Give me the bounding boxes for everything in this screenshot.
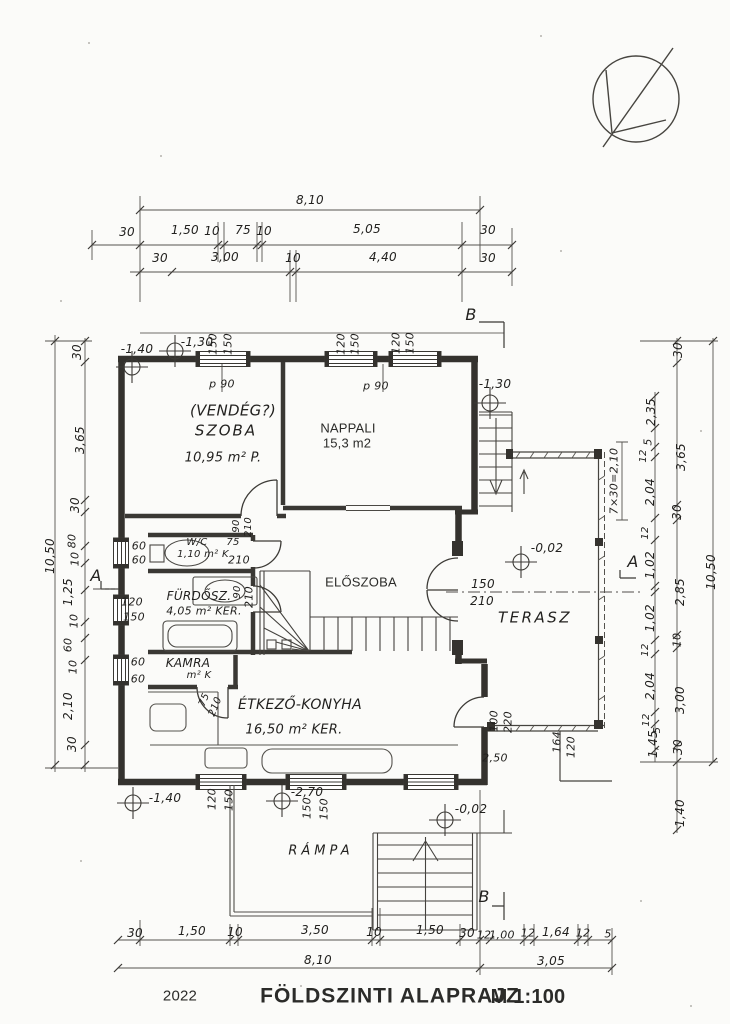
dim-label: 30 — [127, 927, 143, 939]
dim-label: 2,50 — [482, 753, 508, 764]
dim-label: 80 — [67, 534, 78, 549]
opening-label: 120 — [391, 332, 402, 354]
terrace-posts — [487, 449, 603, 731]
dim-label: 12 — [641, 643, 651, 656]
opening-label: 150 — [208, 333, 219, 355]
opening-label: 150 — [319, 798, 330, 820]
dim-label: 10 — [227, 926, 243, 938]
dim-label: 5,05 — [353, 223, 381, 235]
opening-label: 210 — [244, 586, 255, 608]
opening-label: 150 — [302, 797, 313, 819]
opening-label: 120 — [566, 736, 577, 758]
dim-label: 12 — [576, 928, 591, 939]
dim-label: 10 — [68, 660, 79, 675]
dim-label: 1,50 — [171, 224, 199, 236]
section-label-a-right: A — [627, 554, 638, 570]
dim-label: 3,50 — [301, 924, 329, 936]
area-label-szoba: 10,95 m² P. — [185, 452, 262, 465]
opening-label: 150 — [224, 789, 235, 811]
dim-label: 3,00 — [211, 251, 239, 263]
dim-total-top: 8,10 — [296, 194, 324, 206]
room-label-eloszoba: ELŐSZOBA — [325, 576, 397, 589]
level-label: -1,30 — [479, 378, 512, 390]
room-label-rampa: RÁMPA — [288, 845, 353, 858]
north-arrow-icon — [593, 48, 679, 147]
dim-label: 10 — [672, 633, 683, 648]
dim-label: 2,85 — [674, 578, 686, 606]
section-label-a-left: A — [90, 568, 101, 584]
dim-label: 60 — [63, 638, 74, 653]
room-label-kamra: KAMRA — [166, 657, 210, 669]
opening-label: 150 — [405, 332, 416, 354]
dim-label: 4,40 — [369, 251, 397, 263]
year-label: 2022 — [163, 989, 197, 1004]
dim-label: 10 — [256, 225, 272, 237]
dim-label: 30 — [672, 739, 684, 755]
dim-label: 1,50 — [416, 924, 444, 936]
dim-label: 1,25 — [62, 578, 74, 606]
room-label-nappali: NAPPALI — [320, 422, 375, 435]
room-label-terasz: TERASZ — [498, 611, 572, 626]
terrace-arrow-icon — [520, 470, 528, 494]
opening-label: 60 — [131, 657, 146, 668]
section-label-b-top: B — [465, 307, 476, 323]
dim-label: 10 — [69, 614, 80, 629]
room-label-szoba: (VENDÉG?) — [190, 404, 276, 419]
level-label: -1,40 — [149, 792, 182, 804]
dim-label: 12 — [639, 449, 649, 462]
dim-label: 3,65 — [74, 426, 86, 454]
opening-label: 210 — [470, 595, 494, 607]
opening-label: 60 — [131, 674, 146, 685]
area-label-konyha: 16,50 m² KER. — [245, 724, 342, 737]
opening-label: 210 — [244, 517, 254, 537]
area-label-kamra: m² K — [187, 671, 212, 681]
dim-label: 12 — [521, 928, 536, 939]
terrace-hatch — [516, 452, 605, 731]
dim-label: 30 — [672, 342, 684, 358]
opening-label: 164 — [552, 731, 563, 753]
parapet-ticks — [222, 364, 383, 392]
dim-label: 2,10 — [62, 692, 74, 720]
dim-label: 5 — [604, 929, 611, 940]
wall-opening-sill — [346, 506, 390, 511]
opening-label: 75 — [226, 538, 239, 548]
dim-label: 12 — [641, 526, 651, 539]
scale-label: M 1:100 — [491, 987, 566, 1007]
opening-label: 150 — [223, 333, 234, 355]
dim-total-bottom-left: 8,10 — [304, 954, 332, 966]
area-label-wc: 1,10 m² K — [177, 550, 229, 560]
level-label: -0,02 — [455, 803, 488, 815]
dim-label: 30 — [480, 224, 496, 236]
dim-label: 5 — [643, 438, 654, 445]
dim-total-right: 10,50 — [705, 554, 717, 590]
dim-total-left: 10,50 — [44, 538, 56, 574]
dim-label: 1,00 — [489, 930, 515, 941]
dim-label: 10 — [285, 252, 301, 264]
room-label-konyha: ÉTKEZŐ-KONYHA — [238, 698, 362, 712]
scan-speckles — [60, 35, 702, 1007]
opening-label: 100 — [489, 710, 500, 732]
dim-total-bottom-right: 3,05 — [537, 955, 565, 967]
dim-label: 12 — [642, 713, 652, 726]
opening-label: 120 — [207, 788, 218, 810]
parapet-label: p 90 — [209, 379, 235, 390]
opening-label: 60 — [132, 541, 147, 552]
dim-label: 2,04 — [644, 478, 656, 506]
room-label-furdo: FÜRDŐSZ. — [167, 590, 232, 602]
dim-label: 1,40 — [674, 799, 686, 827]
dim-label: 75 — [235, 224, 251, 236]
dim-label: 10 — [70, 552, 81, 567]
area-label-furdo: 4,05 m² KER. — [166, 606, 242, 617]
floor-plan-scan: 8,10 30 1,50 10 75 10 5,05 30 30 3,00 10… — [0, 0, 730, 1024]
room-label-szoba2: SZOBA — [195, 424, 257, 439]
dim-label: 2,04 — [644, 672, 656, 700]
interior-walls — [125, 362, 462, 687]
steps-formula-label: 7×30=2,10 — [609, 448, 620, 515]
dim-label: 3,65 — [675, 443, 687, 471]
dim-label: 1,45 — [647, 730, 659, 758]
opening-label: 120 — [336, 333, 347, 355]
dim-label: 1,02 — [644, 551, 656, 579]
dim-label: 10 — [204, 225, 220, 237]
dim-label: 1,50 — [178, 925, 206, 937]
room-label-wc: W/C — [186, 538, 207, 548]
opening-label: 150 — [471, 578, 495, 590]
page-title: FÖLDSZINTI ALAPRAJZ — [260, 986, 520, 1007]
opening-label: 150 — [123, 612, 145, 623]
dim-label: 1,64 — [542, 926, 570, 938]
dim-label: 10 — [366, 926, 382, 938]
garden-stair-east — [479, 412, 512, 512]
opening-label: 90 — [233, 585, 243, 598]
area-label-nappali: 15,3 m2 — [323, 437, 371, 450]
dim-label: 30 — [459, 927, 475, 939]
dim-label: 30 — [69, 497, 81, 513]
opening-label: 90 — [232, 519, 242, 532]
dim-label: 1,02 — [644, 604, 656, 632]
opening-label: 120 — [121, 597, 143, 608]
level-label: -0,02 — [531, 542, 564, 554]
level-label: -1,40 — [121, 343, 154, 355]
dim-label: 5 — [653, 727, 663, 734]
dim-label: 30 — [671, 504, 683, 520]
dim-label: 3,00 — [674, 686, 686, 714]
floorplan-drawing — [0, 0, 730, 1024]
dim-label: 30 — [71, 344, 83, 360]
opening-label: 220 — [503, 711, 514, 733]
dim-label: 30 — [119, 226, 135, 238]
parapet-label: p 90 — [363, 381, 389, 392]
dim-label: 30 — [66, 736, 78, 752]
section-label-b-bottom: B — [478, 889, 489, 905]
opening-label: 210 — [228, 555, 250, 566]
dim-label: 2,35 — [645, 398, 657, 426]
opening-label: 150 — [350, 333, 361, 355]
dim-label: 30 — [152, 252, 168, 264]
dim-label: 30 — [480, 252, 496, 264]
opening-label: 60 — [132, 555, 147, 566]
